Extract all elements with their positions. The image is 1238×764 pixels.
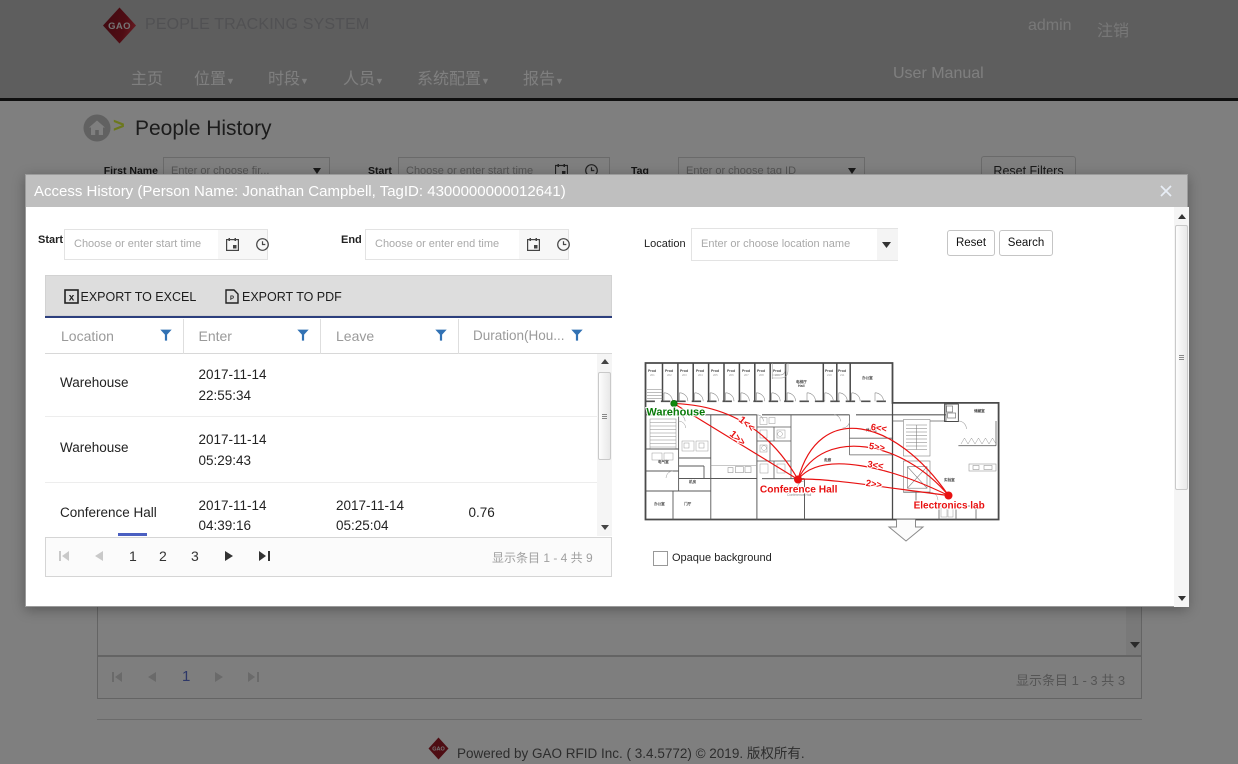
svg-text:207: 207 xyxy=(744,373,749,377)
svg-text:电气室: 电气室 xyxy=(658,459,669,464)
svg-text:Warehouse: Warehouse xyxy=(646,407,705,419)
svg-text:办公室: 办公室 xyxy=(861,375,873,380)
svg-text:205: 205 xyxy=(713,373,718,377)
svg-text:211: 211 xyxy=(840,373,845,377)
svg-text:Hall: Hall xyxy=(798,384,805,388)
svg-text:204: 204 xyxy=(698,373,703,377)
svg-text:Electronics lab: Electronics lab xyxy=(914,501,985,512)
svg-text:202: 202 xyxy=(667,373,672,377)
svg-text:209: 209 xyxy=(775,373,780,377)
svg-text:实验室: 实验室 xyxy=(944,477,955,482)
svg-text:走廊: 走廊 xyxy=(823,457,832,462)
svg-text:x: x xyxy=(68,293,74,304)
svg-text:208: 208 xyxy=(759,373,764,377)
svg-text:201: 201 xyxy=(650,373,655,377)
svg-text:206: 206 xyxy=(729,373,734,377)
svg-text:办公室: 办公室 xyxy=(653,501,665,506)
svg-text:门厅: 门厅 xyxy=(684,501,692,506)
svg-text:储藏室: 储藏室 xyxy=(973,408,985,413)
svg-text:203: 203 xyxy=(682,373,687,377)
svg-text:机房: 机房 xyxy=(688,479,697,484)
svg-text:Conference Hall: Conference Hall xyxy=(760,485,838,496)
svg-text:P: P xyxy=(230,296,234,302)
svg-text:210: 210 xyxy=(827,373,832,377)
